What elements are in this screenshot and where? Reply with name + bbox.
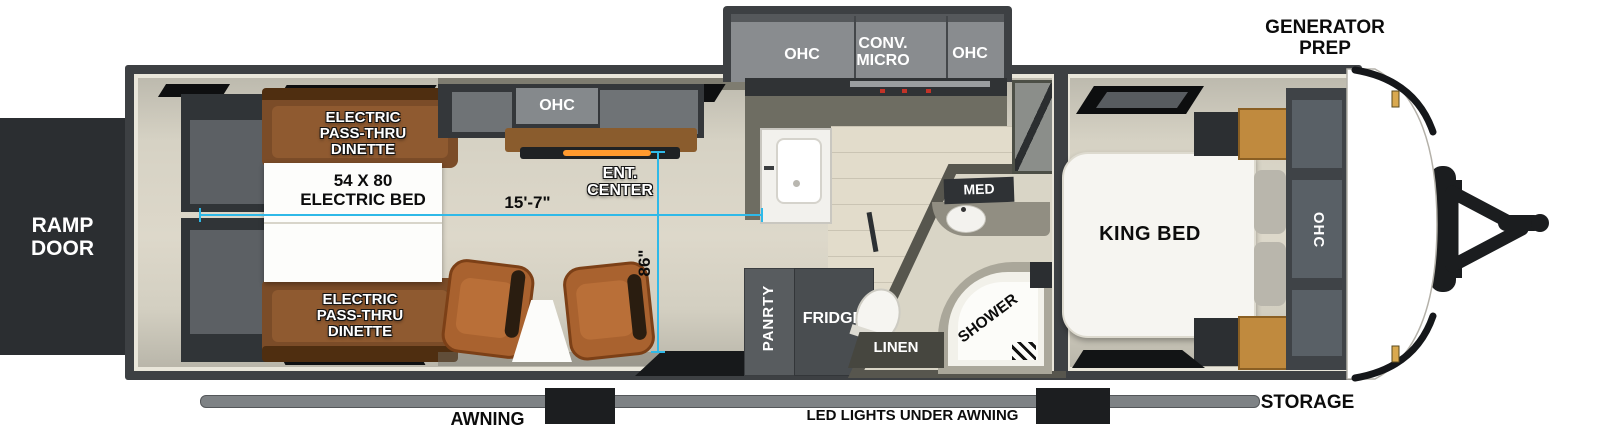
range-knob (902, 89, 907, 93)
length-dimension-label: 15'-7" (455, 193, 600, 213)
height-dimension-tick (651, 151, 665, 153)
range-trim (850, 81, 990, 87)
garage-wall-window (190, 120, 270, 204)
kitchen-slide-cabinet-top (731, 14, 1004, 22)
vanity-faucet (961, 207, 966, 212)
cap-marker-light (1392, 346, 1399, 362)
dinette-top-label: ELECTRIC PASS-THRU DINETTE (283, 110, 443, 158)
length-dimension-line (200, 214, 762, 216)
ramp-door: RAMP DOOR (0, 118, 125, 355)
hitch-coupler-knob (1531, 214, 1549, 232)
electric-bed-split (264, 222, 442, 224)
height-dimension-tick (651, 351, 665, 353)
pillow (1254, 242, 1286, 306)
med-label: MED (944, 181, 1014, 198)
length-dimension-tick (199, 208, 201, 222)
range-knob (926, 89, 931, 93)
ohc-kitchen-right-label: OHC (930, 45, 1010, 62)
bedroom-cabinet (1194, 112, 1240, 156)
height-dimension-line (657, 152, 659, 352)
pillow (1254, 170, 1286, 234)
fireplace-glow (563, 150, 651, 156)
length-dimension-tick (761, 208, 763, 222)
height-dimension-label: 86" (635, 238, 655, 288)
king-bed-label: KING BED (1070, 223, 1230, 245)
ohc-bedroom-label: OHC (1310, 192, 1326, 268)
front-cap-and-hitch (1330, 60, 1570, 390)
ohc-kitchen-left-label: OHC (762, 46, 842, 63)
ohc-cabinet-door (452, 92, 512, 132)
cap-marker-light (1392, 91, 1399, 107)
swivel-chair-cushion (575, 279, 635, 340)
conv-micro-label: CONV. MICRO (838, 35, 928, 69)
nightstand (1238, 316, 1290, 370)
bedroom-skylight-glass (1096, 92, 1188, 108)
nightstand (1238, 108, 1290, 160)
electric-bed-label: 54 X 80 ELECTRIC BED (278, 172, 448, 209)
linen-label: LINEN (854, 340, 938, 356)
shower-head-icon (1012, 342, 1036, 360)
led-lights-label: LED LIGHTS UNDER AWNING (780, 408, 1045, 425)
ramp-door-label: RAMP DOOR (0, 214, 125, 260)
entry-step (1036, 388, 1110, 424)
awning-label: AWNING (420, 410, 555, 430)
dinette-bottom-label: ELECTRIC PASS-THRU DINETTE (280, 292, 440, 340)
dinette-backrest (262, 346, 458, 362)
king-bed (1062, 152, 1256, 338)
kitchen-sink-basin (776, 138, 822, 204)
range-knob (880, 89, 885, 93)
entry-step (545, 388, 615, 424)
garage-wall-window (190, 230, 270, 334)
storage-label: STORAGE (1240, 393, 1375, 414)
vanity-sink (946, 205, 986, 233)
ohc-living-label: OHC (516, 97, 598, 114)
pantry-label: PANRTY (761, 263, 777, 373)
generator-prep-label: GENERATOR PREP (1235, 18, 1415, 60)
sink-drain (793, 180, 800, 187)
kitchen-faucet (764, 166, 774, 170)
bedroom-cabinet (1194, 318, 1240, 366)
rv-floorplan: RAMP DOOR ELECTRIC PASS-THRU DINETTE 54 … (0, 0, 1600, 431)
